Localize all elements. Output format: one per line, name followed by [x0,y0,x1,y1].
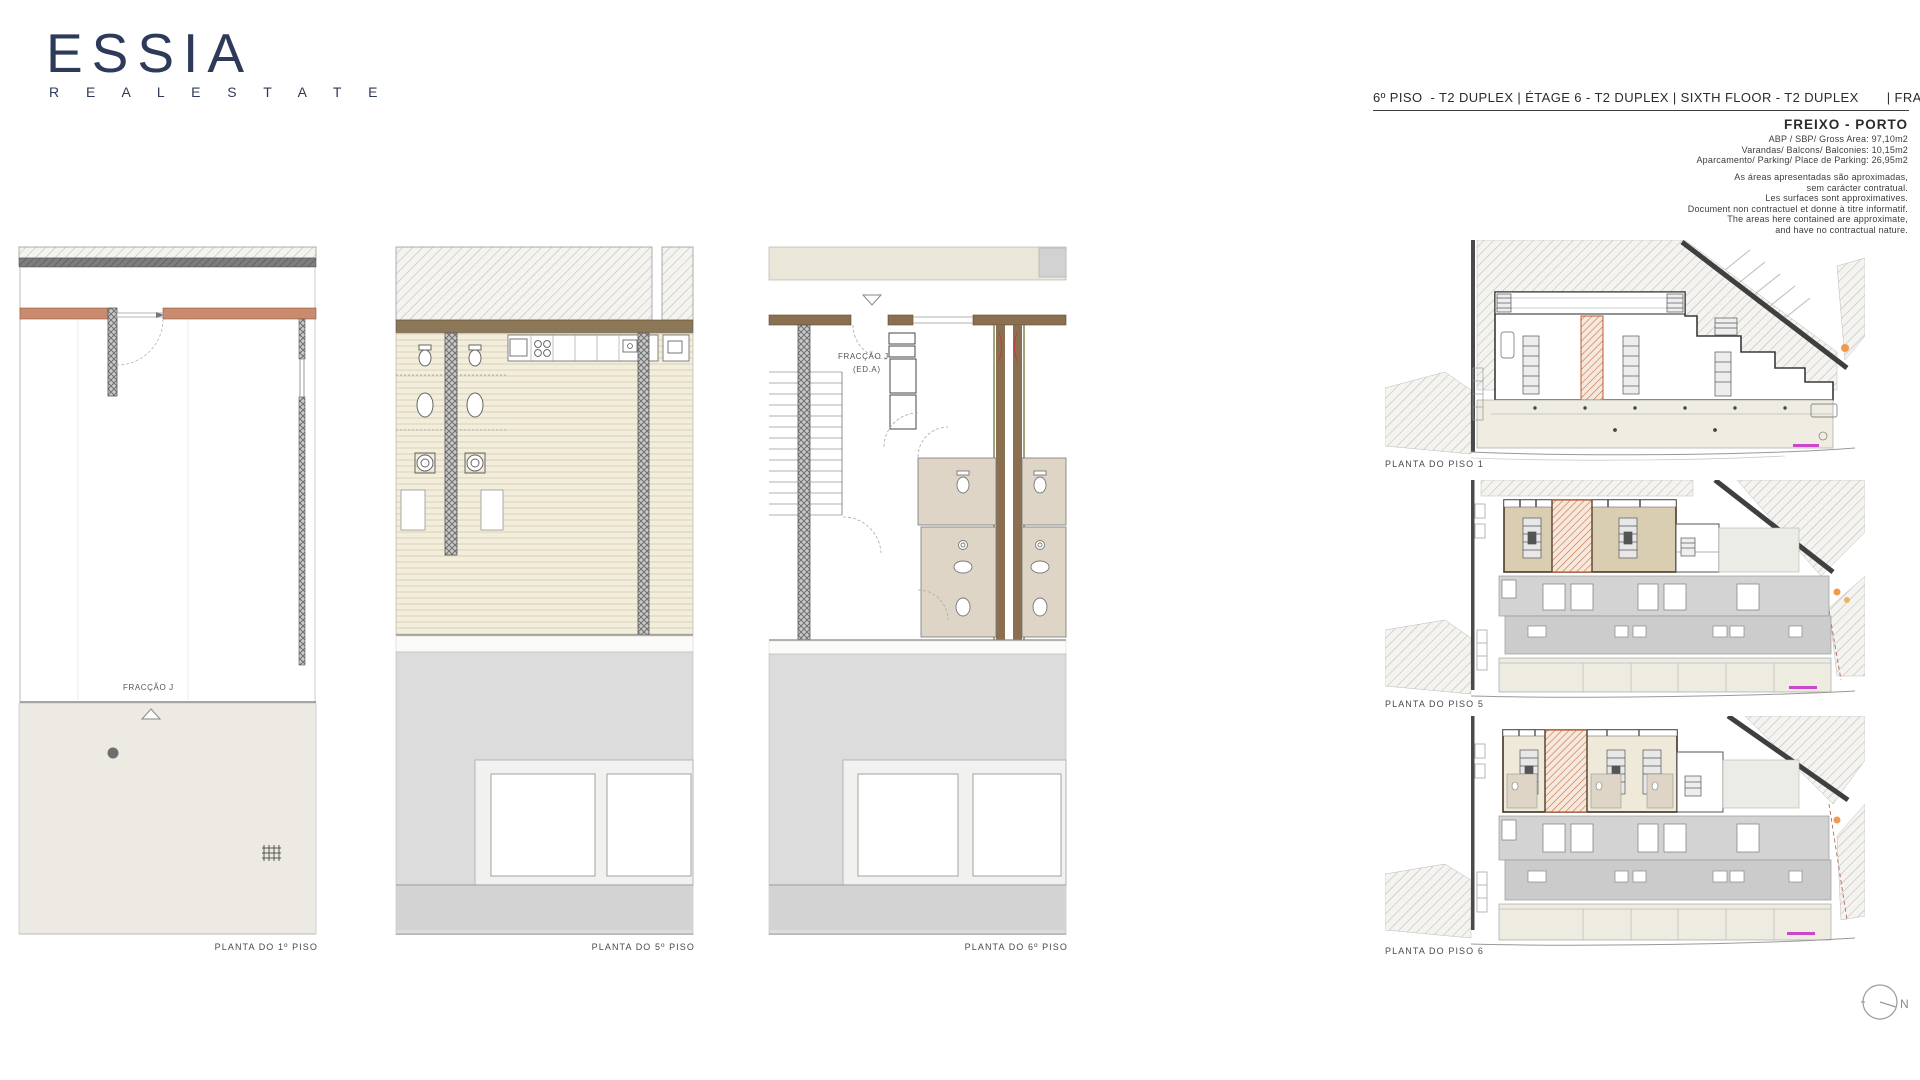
boundary-wall [1471,716,1475,930]
disclaimer-line: and have no contractual nature. [1500,225,1908,236]
area-line: Varandas/ Balcons/ Balconies: 10,15m2 [1500,145,1908,156]
disclaimer: As áreas apresentadas são aproximadas, s… [1500,172,1908,235]
caption-floor-6: PLANTA DO 6º PISO [918,942,1068,952]
site-marker [1841,344,1849,352]
core-wall [798,325,810,640]
fraccao-j-highlight [1552,500,1592,572]
skylight [973,774,1061,876]
annotation-mark [1787,932,1815,935]
top-floor-units [1504,500,1676,572]
column-dot [108,748,119,759]
floor-plan-5 [395,245,695,935]
upper-terrace [769,247,1066,280]
entry-triangle-marker [863,295,881,305]
retaining-steps [1475,504,1487,670]
skylight-panel [475,760,693,885]
skylight [858,774,958,876]
roof-hatch [396,247,693,320]
site-marker [1834,589,1841,596]
wall-stub [108,308,117,396]
disclaimer-line: As áreas apresentadas são aproximadas, [1500,172,1908,183]
floor-plan-5-drawing [395,245,695,935]
site-plan-6 [1385,716,1865,954]
driveway [1477,400,1833,448]
site-plan-1-drawing [1385,240,1865,466]
site-marker [1844,597,1850,603]
street-line [1471,448,1855,455]
caption-site-6: PLANTA DO PISO 6 [1385,946,1484,956]
duct-shaft [994,325,1024,640]
site-marker [1834,817,1841,824]
disclaimer-line: Document non contractuel et donne à titr… [1500,204,1908,215]
salmon-wall [20,308,316,319]
floor-plan-1: FRACÇÃO J [18,245,318,935]
project-location: FREIXO - PORTO [1500,117,1908,132]
edge-band [396,886,693,930]
fraccao-j-highlight [1545,730,1587,812]
side-annex [1676,524,1799,572]
caption-floor-5: PLANTA DO 5º PISO [545,942,695,952]
disclaimer-line: The areas here contained are approximate… [1500,214,1908,225]
unit-label: FRACÇÃO J [838,352,889,361]
skylight-panel [843,760,1066,885]
north-label: N [1900,997,1909,1011]
shaft-wall [638,333,649,635]
site-plan-6-drawing [1385,716,1865,954]
fraccao-j-core-highlight [1581,316,1603,400]
sheet-title: 6º PISO - T2 DUPLEX | ÉTAGE 6 - T2 DUPLE… [1373,90,1909,111]
site-plan-5 [1385,480,1865,706]
disclaimer-line: Les surfaces sont approximatives. [1500,193,1908,204]
roof-hatch-band [19,247,316,267]
caption-site-1: PLANTA DO PISO 1 [1385,459,1484,469]
roof-band-lower [1505,860,1831,900]
caption-site-5: PLANTA DO PISO 5 [1385,699,1484,709]
edge-band [769,886,1066,930]
area-summary: ABP / SBP/ Gross Area: 97,10m2 Varandas/… [1500,134,1908,166]
top-floor-units [1503,730,1677,812]
disclaimer-line: sem carácter contratual. [1500,183,1908,194]
door-swing [117,312,164,365]
gallery-bar [1495,292,1685,314]
terrace [19,703,316,934]
facade-wall [396,320,693,333]
balcony-strip [396,636,693,652]
caption-floor-1: PLANTA DO 1º PISO [168,942,318,952]
plan-sheet: ESSIA R E A L E S T A T E 6º PISO - T2 D… [0,0,1920,1080]
side-annex [1677,752,1799,812]
brand-tagline: R E A L E S T A T E [49,84,389,100]
floor-plan-1-drawing [18,245,318,935]
area-line: Aparcamento/ Parking/ Place de Parking: … [1500,155,1908,166]
annotation-mark [1793,444,1819,447]
skylight [607,774,691,876]
floor-plan-6: FRACÇÃO J (ED.A) [768,245,1068,935]
right-wall-window [299,319,305,665]
boundary-wall [1471,480,1475,690]
closets [889,333,916,429]
skylight [491,774,595,876]
site-plan-5-drawing [1385,480,1865,706]
unit-label: FRACÇÃO J [123,683,174,692]
area-line: ABP / SBP/ Gross Area: 97,10m2 [1500,134,1908,145]
floor-plan-6-drawing [768,245,1068,935]
brand-name: ESSIA [46,26,389,81]
annotation-mark [1789,686,1817,689]
unit-sublabel: (ED.A) [853,365,881,374]
site-plan-1 [1385,240,1865,466]
brand-logo: ESSIA R E A L E S T A T E [46,26,389,100]
roof-band-lower [1505,616,1831,654]
terrace-strip [1499,904,1831,940]
facade-wall [769,315,1066,325]
retaining-steps [1475,744,1487,912]
bathrooms [918,458,1066,637]
